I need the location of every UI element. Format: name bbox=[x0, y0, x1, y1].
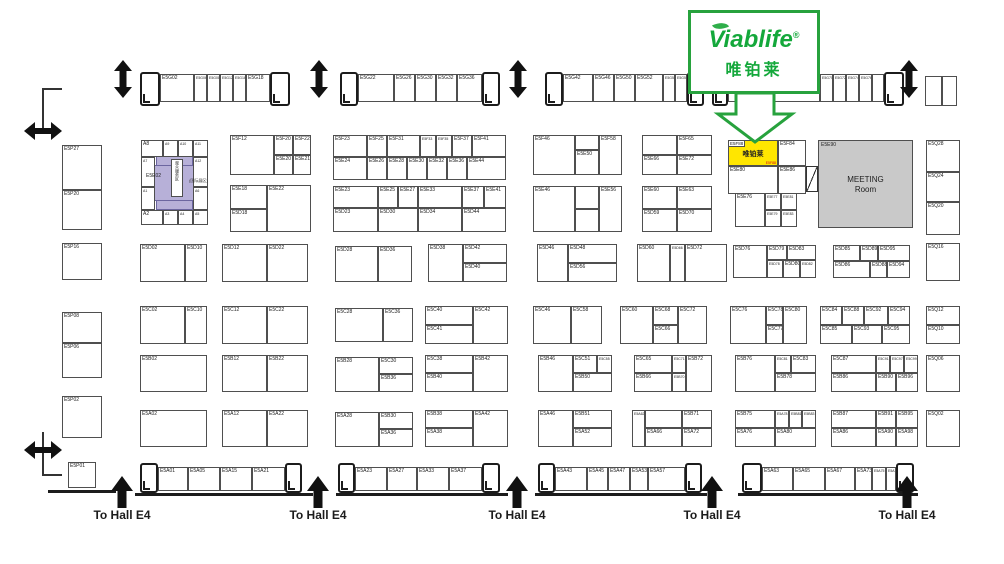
booth-E5D78: E5D78 bbox=[767, 260, 783, 278]
wall-line bbox=[535, 493, 707, 496]
booth-E5B96: E5B96 bbox=[896, 373, 918, 392]
double-arrow-vertical-icon bbox=[309, 60, 329, 98]
booth-E5D88: E5D88 bbox=[870, 261, 887, 278]
booth-E5E81: E5E81 bbox=[781, 193, 797, 210]
wall-line bbox=[135, 493, 313, 496]
booth-cell bbox=[925, 76, 942, 106]
booth-E5Q16: E5Q16 bbox=[926, 243, 960, 281]
booth-E5D82: E5D82 bbox=[800, 260, 816, 278]
booth-E5A02: E5A02 bbox=[140, 410, 207, 447]
booth-cell bbox=[642, 135, 677, 155]
booth-E5D22: E5D22 bbox=[267, 244, 308, 282]
booth-E5G56: E5G56 bbox=[663, 74, 675, 102]
booth-E5G72: E5G72 bbox=[833, 74, 846, 102]
booth-E5A73: E5A73 bbox=[855, 467, 872, 491]
booth-E5A67: E5A67 bbox=[825, 467, 855, 491]
booth-E5C88: E5C88 bbox=[842, 306, 864, 325]
booth-E5G22: E5G22 bbox=[358, 74, 394, 102]
booth-E5A28: E5A28 bbox=[335, 412, 379, 447]
zone-vertical-text: 观众服务区 bbox=[175, 161, 179, 181]
booth-E5A22: E5A22 bbox=[267, 410, 308, 447]
booth-E5E41: E5E41 bbox=[484, 186, 506, 208]
booth-E5B72: E5B72 bbox=[686, 355, 712, 392]
brand-text: Viablife bbox=[708, 26, 792, 53]
booth-E5D38: E5D38 bbox=[428, 244, 463, 282]
booth-E5G02: E5G02 bbox=[160, 74, 194, 102]
booth-E5A42: E5A42 bbox=[473, 410, 508, 447]
hall-exit-label: To Hall E4 bbox=[273, 508, 363, 522]
booth-E5D30: E5D30 bbox=[378, 208, 418, 232]
booth-cell bbox=[942, 76, 957, 106]
booth-A2: A2 bbox=[141, 210, 163, 225]
booth-E5A01: E5A01 bbox=[158, 467, 188, 491]
booth-E5E72: E5E72 bbox=[677, 155, 712, 175]
booth-E5E33: E5E33 bbox=[418, 186, 462, 208]
booth-E5C91: E5C91 bbox=[876, 355, 890, 373]
booth-E5A66: E5A66 bbox=[645, 428, 682, 447]
booth-E5C92: E5C92 bbox=[864, 306, 888, 325]
booth-E5C60: E5C60 bbox=[620, 306, 653, 344]
wall-post bbox=[742, 463, 762, 493]
booth-E5P20: E5P20 bbox=[62, 190, 102, 230]
booth-E5B86: E5B86 bbox=[831, 373, 876, 392]
booth-E5A21: E5A21 bbox=[252, 467, 285, 491]
booth-E5E36: E5E36 bbox=[447, 157, 467, 180]
booth-E5D40: E5D40 bbox=[463, 263, 507, 282]
booth-E5P08: E5P08 bbox=[62, 312, 102, 343]
booth-A1: A1 bbox=[141, 187, 155, 210]
meeting-room-label: MEETING Room bbox=[819, 175, 912, 196]
booth-E5Q06: E5Q06 bbox=[926, 355, 960, 392]
booth-E5F25: E5F25 bbox=[367, 135, 387, 157]
booth-E5C42: E5C42 bbox=[473, 306, 508, 344]
wall-post bbox=[538, 463, 555, 493]
booth-E5Q20: E5Q20 bbox=[926, 202, 960, 235]
booth-E5B83: E5B83 bbox=[802, 410, 816, 428]
booth-E5A72: E5A72 bbox=[682, 428, 712, 447]
booth-E5C80: E5C80 bbox=[783, 306, 807, 344]
booth-E5G26: E5G26 bbox=[394, 74, 415, 102]
booth-E5F12: E5F12 bbox=[230, 135, 274, 175]
booth-E5A86: E5A86 bbox=[831, 428, 876, 447]
up-arrow-icon bbox=[896, 476, 918, 508]
booth-E5F35: E5F35 bbox=[436, 135, 452, 157]
booth-E5C84: E5C84 bbox=[820, 306, 842, 325]
booth-E5D36: E5D36 bbox=[378, 246, 412, 282]
booth-E5F23: E5F23 bbox=[333, 135, 367, 157]
wall-post bbox=[545, 72, 563, 106]
up-arrow-icon bbox=[307, 476, 329, 508]
booth-E5A27: E5A27 bbox=[387, 467, 417, 491]
booth-E5A45: E5A45 bbox=[587, 467, 608, 491]
booth-E5C51: E5C51 bbox=[573, 355, 597, 373]
booth-E5E32: E5E32 bbox=[427, 157, 447, 180]
booth-E5D95: E5D95 bbox=[878, 245, 910, 261]
booth-E5E56: E5E56 bbox=[599, 186, 622, 232]
booth-A7: A7 bbox=[141, 157, 155, 187]
wall-post bbox=[285, 463, 302, 493]
booth-E5A53: E5A53 bbox=[630, 467, 648, 491]
booth-E5G50: E5G50 bbox=[614, 74, 635, 102]
booth-E5E28: E5E28 bbox=[387, 157, 407, 180]
booth-E5D89: E5D89 bbox=[860, 245, 878, 261]
wall-line bbox=[48, 490, 116, 493]
booth-E5G08: E5G08 bbox=[207, 74, 220, 102]
booth-E5C93: E5C93 bbox=[852, 325, 882, 344]
booth-E5A98: E5A98 bbox=[896, 428, 918, 447]
booth-E5F20: E5F20 bbox=[274, 135, 293, 155]
wall-line bbox=[738, 493, 918, 496]
booth-E5P01: E5P01 bbox=[68, 462, 96, 488]
booth-E5D86: E5D86 bbox=[833, 261, 870, 278]
booth-E5E83: E5E83 bbox=[781, 210, 797, 227]
booth-E5B28: E5B28 bbox=[335, 357, 379, 392]
booth-E5G52: E5G52 bbox=[635, 74, 663, 102]
brand-name-chinese: 唯铂莱 bbox=[691, 56, 817, 80]
booth-E5B71: E5B71 bbox=[682, 410, 712, 428]
wall-post bbox=[340, 72, 358, 106]
booth-E5E44: E5E44 bbox=[467, 157, 506, 180]
booth-E5E77: E5E77 bbox=[765, 193, 781, 210]
booth-E5E80: E5E80 bbox=[728, 166, 778, 194]
zone-side-label: (国际展区) bbox=[189, 178, 208, 184]
booth-E5B51: E5B51 bbox=[573, 410, 612, 428]
booth-cell bbox=[575, 135, 599, 150]
booth-E5F31: E5F31 bbox=[387, 135, 420, 157]
booth-E5A36: E5A36 bbox=[379, 429, 413, 447]
booth-E5P02: E5P02 bbox=[62, 396, 102, 438]
booth-E5D02: E5D02 bbox=[140, 244, 185, 282]
meeting-room: E5E90 MEETING Room bbox=[818, 140, 913, 228]
booth-E5D28: E5D28 bbox=[335, 246, 378, 282]
booth-E5A57: E5A57 bbox=[648, 467, 685, 491]
booth-E5G32: E5G32 bbox=[436, 74, 457, 102]
wall-post bbox=[482, 463, 500, 493]
booth-E5C72: E5C72 bbox=[678, 306, 707, 344]
booth-E5F33: E5F33 bbox=[420, 135, 436, 157]
door-icon bbox=[806, 166, 818, 192]
booth-E5A37: E5A37 bbox=[449, 467, 482, 491]
booth-E5A52: E5A52 bbox=[573, 428, 612, 447]
booth-E5A47: E5A47 bbox=[608, 467, 630, 491]
booth-E5D48: E5D48 bbox=[568, 244, 617, 263]
booth-E5Q12: E5Q12 bbox=[926, 306, 960, 325]
booth-A4: A4 bbox=[178, 210, 193, 225]
booth-E5G70: E5G70 bbox=[820, 74, 833, 102]
wall-post bbox=[685, 463, 702, 493]
double-arrow-horizontal-icon bbox=[24, 122, 62, 140]
wall-post bbox=[140, 463, 158, 493]
booth-E5C65: E5C65 bbox=[634, 355, 672, 373]
meeting-room-line2: Room bbox=[819, 185, 912, 195]
booth-E5D76: E5D76 bbox=[733, 245, 767, 278]
booth-E5E25: E5E25 bbox=[378, 186, 398, 208]
booth-E5A43: E5A43 bbox=[555, 467, 587, 491]
booth-E5D23: E5D23 bbox=[333, 208, 378, 232]
booth-E5E18: E5E18 bbox=[230, 185, 267, 209]
booth-E5C40: E5C40 bbox=[425, 306, 473, 325]
booth-E5E60: E5E60 bbox=[642, 186, 677, 209]
up-arrow-icon bbox=[701, 476, 723, 508]
exhibition-floor-plan: E5E02 观众服务区 (国际展区) E5F88 唯铂莱 E5F88 E5E90… bbox=[0, 0, 1004, 564]
booth-E5C46: E5C46 bbox=[533, 306, 571, 344]
booth-E5C78: E5C78 bbox=[766, 306, 783, 325]
booth-E5E63: E5E63 bbox=[677, 186, 712, 209]
booth-E5A12: E5A12 bbox=[222, 410, 267, 447]
booth-E5D66: E5D66 bbox=[670, 244, 685, 282]
double-arrow-horizontal-icon bbox=[24, 441, 62, 459]
booth-E5G18: E5G18 bbox=[246, 74, 270, 102]
booth-E5F22: E5F22 bbox=[293, 135, 311, 155]
booth-E5G36: E5G36 bbox=[457, 74, 482, 102]
booth-E5D46: E5D46 bbox=[537, 244, 568, 282]
booth-E5B90: E5B90 bbox=[876, 373, 896, 392]
booth-E5C22: E5C22 bbox=[267, 306, 308, 344]
booth-note: E5F88 bbox=[766, 161, 776, 165]
zone-label: E5E02 bbox=[146, 173, 161, 179]
booth-E5A38: E5A38 bbox=[425, 428, 473, 447]
booth-E5B70: E5B70 bbox=[672, 373, 686, 392]
logo-pointer-arrow-icon bbox=[700, 92, 810, 144]
booth-E5D10: E5D10 bbox=[185, 244, 207, 282]
booth-E5G30: E5G30 bbox=[415, 74, 436, 102]
booth-E5G06: E5G06 bbox=[194, 74, 207, 102]
booth-E5D44: E5D44 bbox=[462, 208, 506, 232]
booth-E5B50: E5B50 bbox=[573, 373, 612, 392]
booth-E5D80: E5D80 bbox=[783, 260, 800, 278]
booth-E5A79: E5A79 bbox=[886, 467, 896, 491]
viablife-logo: Viablife® 唯铂莱 bbox=[688, 10, 820, 94]
booth-E5B40: E5B40 bbox=[425, 373, 473, 392]
booth-E5G16: E5G16 bbox=[233, 74, 246, 102]
booth-cell bbox=[575, 186, 599, 209]
booth-E5C76: E5C76 bbox=[730, 306, 766, 344]
booth-E5A78: E5A78 bbox=[775, 410, 789, 428]
booth-E5C58: E5C58 bbox=[571, 306, 602, 344]
booth-E5E20: E5E20 bbox=[274, 155, 293, 175]
booth-E5B66: E5B66 bbox=[634, 373, 672, 392]
booth-E5C10: E5C10 bbox=[185, 306, 207, 344]
wall-post bbox=[338, 463, 355, 493]
booth-E5C77: E5C77 bbox=[766, 325, 783, 344]
booth-E5B30: E5B30 bbox=[379, 412, 413, 429]
booth-A11: A11 bbox=[193, 140, 208, 157]
booth-E5G12: E5G12 bbox=[220, 74, 233, 102]
booth-E5D18: E5D18 bbox=[230, 209, 267, 232]
booth-E5C95: E5C95 bbox=[882, 325, 910, 344]
booth-E5E26: E5E26 bbox=[367, 157, 387, 180]
booth-E5A46: E5A46 bbox=[538, 410, 573, 447]
booth-E5P06: E5P06 bbox=[62, 343, 102, 378]
booth-E5B95: E5B95 bbox=[896, 410, 918, 428]
booth-E5C36: E5C36 bbox=[383, 308, 413, 342]
booth-E5E50: E5E50 bbox=[575, 150, 599, 175]
booth-E5Q24: E5Q24 bbox=[926, 172, 960, 202]
brand-name: Viablife® bbox=[691, 26, 817, 54]
booth-E5E21: E5E21 bbox=[293, 155, 311, 175]
double-arrow-vertical-icon bbox=[113, 60, 133, 98]
booth-E5C97: E5C97 bbox=[890, 355, 904, 373]
booth-E5E86: E5E86 bbox=[778, 166, 806, 194]
booth-E5P16: E5P16 bbox=[62, 243, 102, 280]
booth-E5A62: E5A62 bbox=[632, 410, 645, 447]
double-arrow-vertical-icon bbox=[899, 60, 919, 98]
booth-E5D94: E5D94 bbox=[887, 261, 910, 278]
booth-E5E23: E5E23 bbox=[333, 186, 378, 208]
up-arrow-icon bbox=[506, 476, 528, 508]
booth-E5E79: E5E79 bbox=[765, 210, 781, 227]
booth-E5F41: E5F41 bbox=[472, 135, 506, 157]
booth-A9: A9 bbox=[163, 140, 178, 157]
meeting-room-line1: MEETING bbox=[819, 175, 912, 185]
booth-E5B38: E5B38 bbox=[425, 410, 473, 428]
booth-E5D59: E5D59 bbox=[642, 209, 677, 232]
booth-E5A75: E5A75 bbox=[872, 467, 886, 491]
booth-E5C30: E5C30 bbox=[379, 357, 413, 374]
booth-E5D70: E5D70 bbox=[677, 209, 712, 232]
booth-E5A63: E5A63 bbox=[762, 467, 793, 491]
booth-E5C99: E5C99 bbox=[904, 355, 918, 373]
exhibitor-name: 唯铂莱 bbox=[729, 149, 777, 159]
booth-A10: A10 bbox=[178, 140, 193, 157]
booth-E5C87: E5C87 bbox=[831, 355, 876, 373]
booth-E5A76: E5A76 bbox=[735, 428, 775, 447]
booth-E5G74: E5G74 bbox=[846, 74, 859, 102]
booth-E5P27: E5P27 bbox=[62, 145, 102, 190]
booth-E5B36: E5B36 bbox=[379, 374, 413, 392]
booth-E5A80: E5A80 bbox=[775, 428, 816, 447]
registered-mark: ® bbox=[793, 30, 800, 40]
wall-post bbox=[140, 72, 160, 106]
booth-E5D72: E5D72 bbox=[685, 244, 727, 282]
meeting-room-id: E5E90 bbox=[821, 142, 836, 148]
booth-cell bbox=[872, 74, 884, 102]
booth-E5C71: E5C71 bbox=[672, 355, 686, 373]
booth-A6: A6 bbox=[193, 187, 208, 210]
booth-E5C94: E5C94 bbox=[888, 306, 910, 325]
booth-E5A65: E5A65 bbox=[793, 467, 825, 491]
booth-E5D34: E5D34 bbox=[418, 208, 462, 232]
booth-E5D12: E5D12 bbox=[222, 244, 267, 282]
booth-A5: A5 bbox=[193, 210, 208, 225]
wall-post bbox=[482, 72, 500, 106]
booth-E5E46: E5E46 bbox=[533, 186, 575, 232]
booth-E5G58: E5G58 bbox=[675, 74, 687, 102]
booth-E5B76: E5B76 bbox=[735, 355, 775, 392]
booth-E5C02: E5C02 bbox=[140, 306, 185, 344]
booth-cell bbox=[575, 209, 599, 232]
booth-E5B02: E5B02 bbox=[140, 355, 207, 392]
wall-line bbox=[336, 493, 508, 496]
booth-E5C55: E5C55 bbox=[597, 355, 612, 373]
booth-E5G46: E5G46 bbox=[593, 74, 614, 102]
booth-cell bbox=[645, 410, 682, 428]
booth-E5D60: E5D60 bbox=[637, 244, 670, 282]
booth-E5C85: E5C85 bbox=[820, 325, 852, 344]
hall-exit-label: To Hall E4 bbox=[667, 508, 757, 522]
booth-E5C83: E5C83 bbox=[791, 355, 816, 373]
booth-E5C41: E5C41 bbox=[425, 325, 473, 344]
booth-E5D79: E5D79 bbox=[767, 245, 787, 260]
booth-E5E76: E5E76 bbox=[735, 193, 765, 227]
booth-E5C12: E5C12 bbox=[222, 306, 267, 344]
booth-A8: A8 bbox=[141, 140, 163, 157]
booth-E5B78: E5B78 bbox=[775, 373, 816, 392]
booth-E5B81: E5B81 bbox=[789, 410, 802, 428]
booth-E5B12: E5B12 bbox=[222, 355, 267, 392]
booth-E5D83: E5D83 bbox=[787, 245, 816, 260]
booth-E5D85: E5D85 bbox=[833, 245, 860, 261]
booth-A3: A3 bbox=[163, 210, 178, 225]
booth-E5G42: E5G42 bbox=[563, 74, 593, 102]
booth-E5E30: E5E30 bbox=[407, 157, 427, 180]
booth-E5F46: E5F46 bbox=[533, 135, 575, 175]
zone-info-box: 观众服务区 bbox=[171, 159, 183, 197]
double-arrow-vertical-icon bbox=[508, 60, 528, 98]
booth-E5Q28: E5Q28 bbox=[926, 140, 960, 172]
booth-E5C81: E5C81 bbox=[775, 355, 791, 373]
booth-E5Q02: E5Q02 bbox=[926, 410, 960, 447]
booth-E5G76: E5G76 bbox=[859, 74, 872, 102]
booth-E5B46: E5B46 bbox=[538, 355, 573, 392]
booth-E5B75: E5B75 bbox=[735, 410, 775, 428]
booth-E5D56: E5D56 bbox=[568, 263, 617, 282]
booth-E5B91: E5B91 bbox=[876, 410, 896, 428]
booth-E5B22: E5B22 bbox=[267, 355, 308, 392]
hall-exit-label: To Hall E4 bbox=[472, 508, 562, 522]
booth-E5C66: E5C66 bbox=[653, 325, 678, 344]
booth-E5E27: E5E27 bbox=[398, 186, 418, 208]
booth-E5Q10: E5Q10 bbox=[926, 325, 960, 344]
booth-E5D42: E5D42 bbox=[463, 244, 507, 263]
booth-E5C28: E5C28 bbox=[335, 308, 383, 342]
booth-E5C38: E5C38 bbox=[425, 355, 473, 373]
hall-exit-label: To Hall E4 bbox=[77, 508, 167, 522]
booth-E5F58: E5F58 bbox=[599, 135, 622, 175]
booth-E5B87: E5B87 bbox=[831, 410, 876, 428]
booth-E5A15: E5A15 bbox=[220, 467, 252, 491]
up-arrow-icon bbox=[111, 476, 133, 508]
booth-E5F37: E5F37 bbox=[452, 135, 472, 157]
wall-post bbox=[270, 72, 290, 106]
booth-E5E22: E5E22 bbox=[267, 185, 311, 232]
booth-E5A05: E5A05 bbox=[188, 467, 220, 491]
booth-E5E37: E5E37 bbox=[462, 186, 484, 208]
booth-E5E66: E5E66 bbox=[642, 155, 677, 175]
booth-E5A33: E5A33 bbox=[417, 467, 449, 491]
hall-exit-label: To Hall E4 bbox=[862, 508, 952, 522]
booth-E5B42: E5B42 bbox=[473, 355, 508, 392]
booth-E5A23: E5A23 bbox=[355, 467, 387, 491]
booth-E5A90: E5A90 bbox=[876, 428, 896, 447]
booth-E5C68: E5C68 bbox=[653, 306, 678, 325]
booth-E5E24: E5E24 bbox=[333, 157, 367, 180]
